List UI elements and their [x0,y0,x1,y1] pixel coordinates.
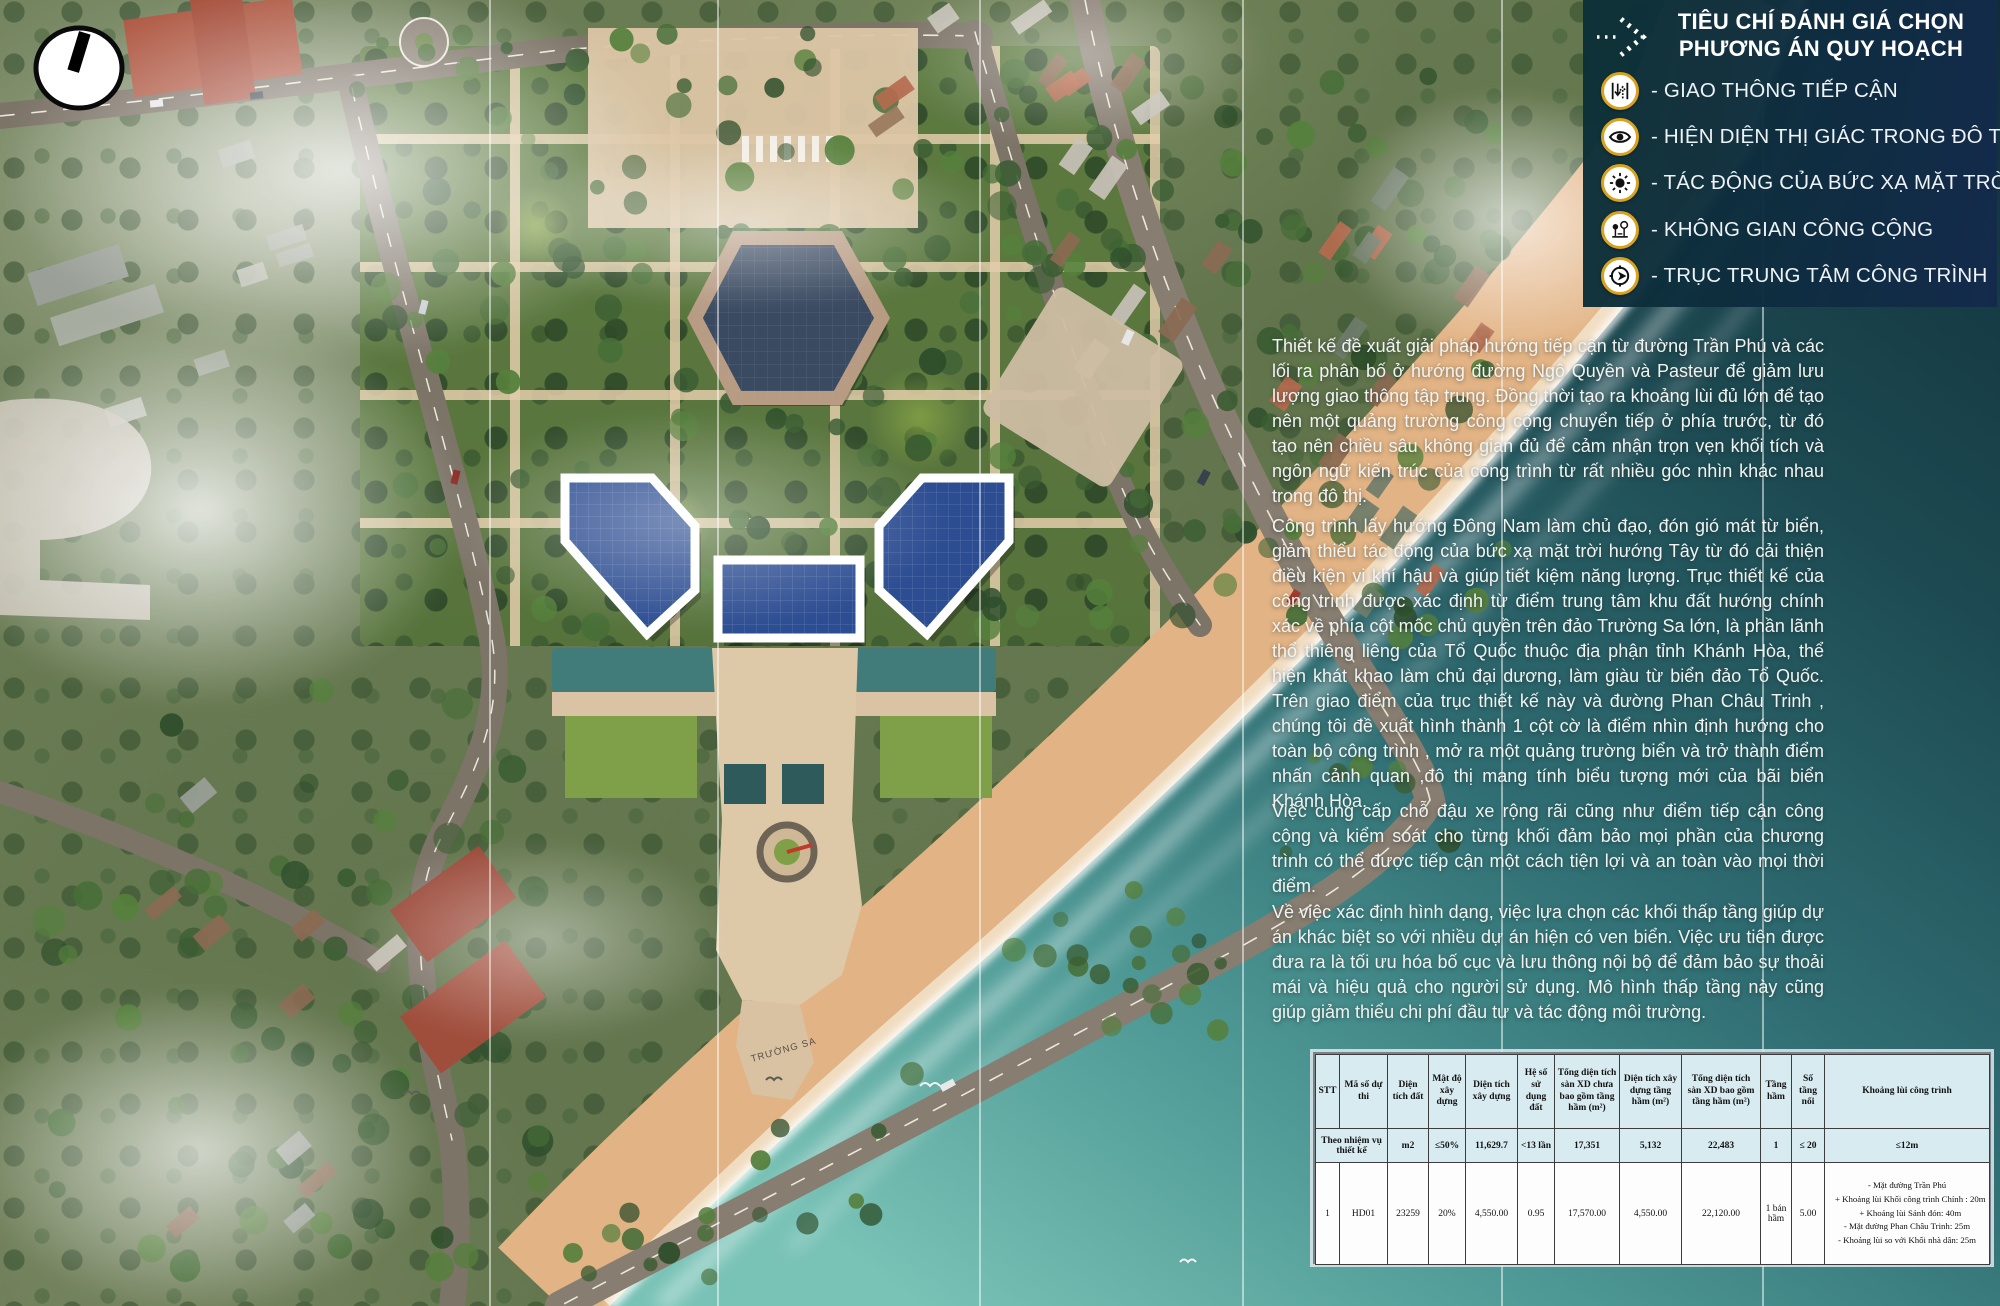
traffic-access-icon [1601,72,1639,110]
legend-item-label: - GIAO THÔNG TIẾP CẬN [1651,79,1898,103]
spec-label: Theo nhiệm vụ thiết kế [1316,1129,1388,1163]
description-paragraph-1: Thiết kế đề xuất giải pháp hướng tiếp cậ… [1272,334,1824,509]
cell-mat-do: 20% [1429,1163,1466,1265]
cell-code: HD01 [1340,1163,1388,1265]
dashed-arrow-icon [1595,13,1649,59]
spec-value: 17,351 [1555,1129,1620,1163]
col-header: Diện tích xây dựng [1466,1055,1518,1129]
cell-so-tang-noi: 5.00 [1792,1163,1825,1265]
col-header: Mã số dự thi [1340,1055,1388,1129]
legend-title-line2: PHƯƠNG ÁN QUY HOẠCH [1657,36,1985,63]
col-header: Hệ số sử dụng đất [1518,1055,1555,1129]
legend-item-solar: - TÁC ĐỘNG CỦA BỨC XẠ MẶT TRỜI [1595,160,1985,206]
legend-title-line1: TIÊU CHÍ ĐÁNH GIÁ CHỌN [1657,9,1985,36]
cell-dt-xay-dung: 4,550.00 [1466,1163,1518,1265]
central-axis-icon [1601,257,1639,295]
design-data-row: 1 HD01 23259 20% 4,550.00 0.95 17,570.00… [1316,1163,1990,1265]
col-header: Diện tích xây dựng tầng hầm (m²) [1620,1055,1682,1129]
required-spec-row: Theo nhiệm vụ thiết kế m2 ≤50% 11,629.7 … [1316,1129,1990,1163]
legend-item-label: - TÁC ĐỘNG CỦA BỨC XẠ MẶT TRỜI [1651,171,2000,195]
legend-title: TIÊU CHÍ ĐÁNH GIÁ CHỌN PHƯƠNG ÁN QUY HOẠ… [1595,9,1985,63]
spec-value: m2 [1388,1129,1429,1163]
public-space-icon [1601,211,1639,249]
cell-tong-dt-gom-ham: 22,120.00 [1682,1163,1761,1265]
cell-he-so: 0.95 [1518,1163,1555,1265]
spec-value: 11,629.7 [1466,1129,1518,1163]
legend-item-label: - TRỤC TRUNG TÂM CÔNG TRÌNH [1651,264,1987,288]
criteria-legend-panel: TIÊU CHÍ ĐÁNH GIÁ CHỌN PHƯƠNG ÁN QUY HOẠ… [1583,0,1997,307]
spec-value: <13 lần [1518,1129,1555,1163]
legend-item-central-axis: - TRỤC TRUNG TÂM CÔNG TRÌNH [1595,253,1985,299]
legend-item-label: - HIỆN DIỆN THỊ GIÁC TRONG ĐÔ THỊ [1651,125,2000,149]
presentation-board: TRƯỜNG SA [0,0,2000,1306]
spec-value: 22,483 [1682,1129,1761,1163]
description-paragraph-3: Việc cung cấp chỗ đậu xe rộng rãi cũng n… [1272,799,1824,899]
col-header: Tầng hầm [1761,1055,1792,1129]
planning-data-table: STT Mã số dự thi Diện tích đất Mật độ xâ… [1313,1052,1991,1264]
col-header: STT [1316,1055,1340,1129]
spec-value: ≤12m [1825,1129,1990,1163]
spec-value: 1 [1761,1129,1792,1163]
col-header: Khoảng lùi công trình [1825,1055,1990,1129]
eye-icon [1601,118,1639,156]
legend-item-traffic: - GIAO THÔNG TIẾP CẬN [1595,68,1985,114]
legend-item-visibility: - HIỆN DIỆN THỊ GIÁC TRONG ĐÔ THỊ [1595,114,1985,160]
cell-khoang-lui: - Mặt đường Trần Phú + Khoảng lùi Khối c… [1825,1163,1990,1265]
sun-icon [1601,164,1639,202]
spec-value: ≤ 20 [1792,1129,1825,1163]
north-compass-icon [32,24,128,114]
cell-dt-tang-ham: 4,550.00 [1620,1163,1682,1265]
proposed-buildings [565,238,1015,646]
cell-stt: 1 [1316,1163,1340,1265]
col-header: Diện tích đất [1388,1055,1429,1129]
spec-value: 5,132 [1620,1129,1682,1163]
cell-dien-tich-dat: 23259 [1388,1163,1429,1265]
col-header: Số tầng nổi [1792,1055,1825,1129]
col-header: Tổng diện tích sàn XD chưa bao gồm tầng … [1555,1055,1620,1129]
col-header: Mật độ xây dựng [1429,1055,1466,1129]
cell-tong-dt-chua-ham: 17,570.00 [1555,1163,1620,1265]
spec-value: ≤50% [1429,1129,1466,1163]
table-header-row: STT Mã số dự thi Diện tích đất Mật độ xâ… [1316,1055,1990,1129]
legend-item-label: - KHÔNG GIAN CÔNG CỘNG [1651,218,1933,242]
description-paragraph-4: Về việc xác định hình dạng, việc lựa chọ… [1272,900,1824,1025]
description-paragraph-2: Công trình lấy hướng Đông Nam làm chủ đạ… [1272,514,1824,814]
legend-item-public-space: - KHÔNG GIAN CÔNG CỘNG [1595,206,1985,252]
col-header: Tổng diện tích sàn XD bao gồm tầng hầm (… [1682,1055,1761,1129]
cell-tang-ham: 1 bán hầm [1761,1163,1792,1265]
